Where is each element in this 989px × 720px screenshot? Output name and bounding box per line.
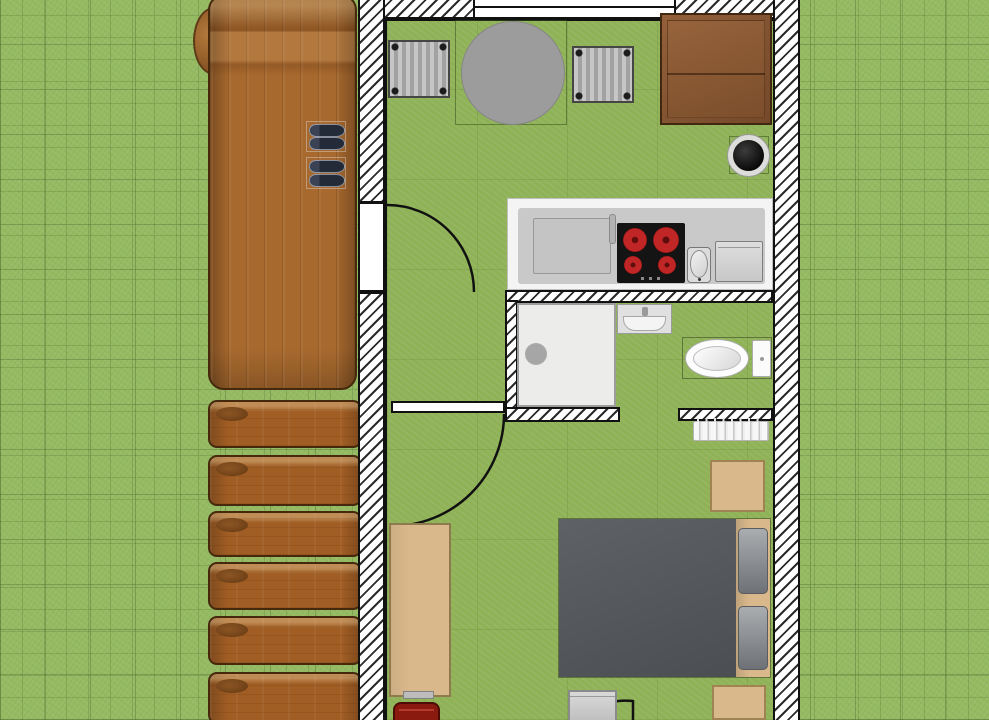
- basin-faucet-icon: [642, 307, 648, 316]
- sofa-cushion: [667, 20, 765, 118]
- nightstand-lower[interactable]: [712, 685, 766, 720]
- kitchen-sink[interactable]: [687, 247, 711, 283]
- appliance-lid-line: [718, 247, 760, 248]
- sink-drain-dot: [698, 278, 701, 281]
- cooktop-controls: [641, 277, 661, 280]
- desk-chair-red[interactable]: [393, 702, 440, 720]
- burner-large-right: [653, 227, 679, 253]
- worktop: [533, 218, 611, 274]
- plant-pot[interactable]: [727, 134, 770, 177]
- basin-bowl: [623, 316, 666, 331]
- burner-large-left: [623, 228, 647, 252]
- keyboard-tray[interactable]: [403, 691, 434, 699]
- kitchen-appliance[interactable]: [715, 241, 763, 282]
- toilet-bowl: [685, 339, 749, 378]
- washbasin[interactable]: [617, 304, 672, 334]
- toilet-seat: [693, 346, 741, 371]
- flush-button: [760, 357, 764, 361]
- bed-pillow-top: [738, 528, 768, 594]
- sink-basin: [690, 250, 708, 278]
- radiator[interactable]: [693, 421, 769, 441]
- toilet-tank: [752, 340, 771, 377]
- dining-chair-left[interactable]: [388, 40, 450, 98]
- shower-drain: [525, 343, 547, 365]
- cooktop[interactable]: [617, 223, 685, 283]
- sofa[interactable]: [660, 13, 772, 125]
- mattress: [559, 519, 738, 677]
- floor-plan-canvas: [0, 0, 989, 720]
- dining-table[interactable]: [461, 21, 565, 125]
- pot-bowl: [733, 140, 764, 171]
- double-bed[interactable]: [558, 518, 771, 678]
- nightstand-upper[interactable]: [710, 460, 765, 512]
- toilet[interactable]: [682, 337, 772, 379]
- burner-small-right: [658, 256, 676, 274]
- desk[interactable]: [389, 523, 451, 697]
- dresser[interactable]: [568, 690, 617, 720]
- dining-chair-right[interactable]: [572, 46, 634, 103]
- chair-seat-line: [399, 709, 434, 711]
- kitchen-counter[interactable]: [507, 198, 773, 290]
- dresser-top-line: [570, 696, 615, 697]
- burner-small-left: [624, 256, 642, 274]
- bed-pillow-bottom: [738, 606, 768, 670]
- shower-cabin[interactable]: [517, 303, 616, 407]
- counter-faucet: [609, 214, 616, 244]
